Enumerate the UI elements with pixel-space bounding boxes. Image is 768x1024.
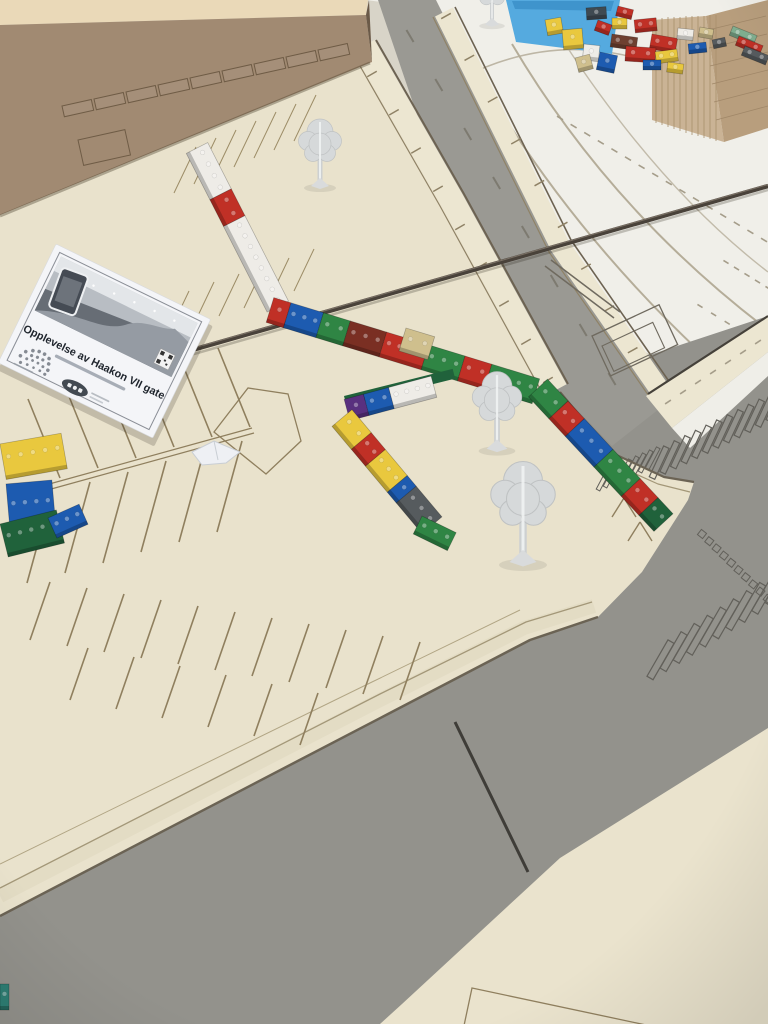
model-photo: Opplevelse av Haakon VII gate [0,0,768,1024]
model-scene: Opplevelse av Haakon VII gate [0,0,768,1024]
vignette-overlay [0,0,768,1024]
